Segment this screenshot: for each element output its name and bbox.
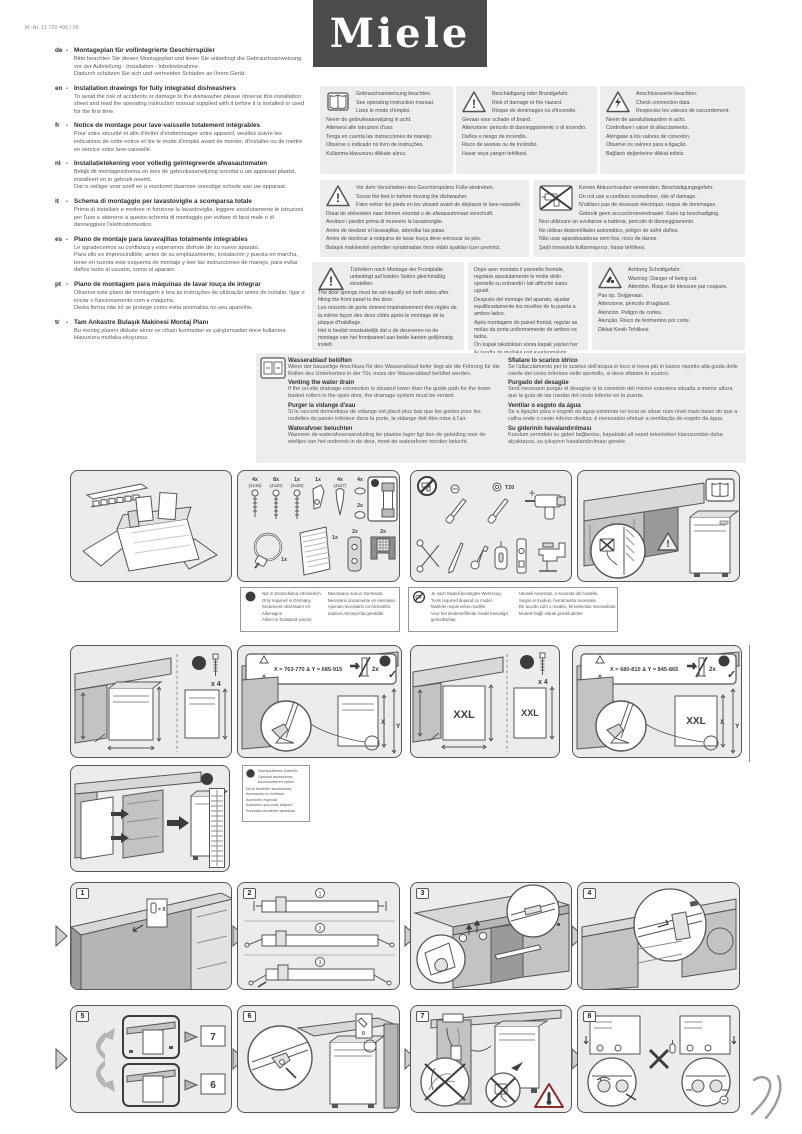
step-number: 2	[243, 888, 256, 899]
bracket-screw-detail	[248, 1026, 312, 1090]
pencil-icon	[449, 543, 463, 573]
note-line: Voor het desbetreffende model benodigd g…	[431, 611, 513, 624]
foot-detail-circle	[261, 701, 311, 751]
fitting-qty: 1x	[315, 477, 321, 483]
note-col: Utensili necessari, a seconda del modell…	[519, 591, 613, 628]
template-card: = X	[147, 899, 167, 927]
drain-section: Wasserablauf belüften Wenn der bauseitig…	[256, 353, 746, 463]
note-line: Alleen in Duitsland vereist.	[262, 617, 322, 624]
manual-reference-icon	[706, 479, 734, 501]
warning-line: Pas op. Snijgevaar.	[598, 293, 739, 300]
note-line: Sonradan alınabilen aksesuar.	[246, 809, 306, 815]
warning-line: Dikkat Kesik Tehlikesi.	[598, 327, 739, 334]
fitting-size: (4x20)	[290, 483, 303, 488]
intro-body: Observe este plano de montagem e leia as…	[74, 290, 305, 313]
step8-illustration	[578, 1006, 740, 1113]
warning-line: Atención. Peligro de cortes.	[598, 310, 739, 317]
svg-text:Y: Y	[735, 723, 740, 730]
cap-icon	[355, 512, 365, 519]
warning-line: Kullanma klavuzunu dikkate alınız.	[326, 151, 447, 158]
warning-line: Tenga en cuenta las instrucciones de man…	[326, 134, 447, 141]
warning-line: Gevaar voor schade of brand.	[462, 117, 591, 124]
warning-line: See operating instruction manual.	[356, 100, 447, 107]
intro-title: Schema di montaggio per lavastoviglie a …	[74, 198, 252, 206]
vent-kit-box: D	[368, 477, 397, 521]
svg-text:M: M	[524, 658, 531, 667]
left-adjustment-view	[584, 1016, 640, 1106]
intro-column: de-Montageplan für vollintegrierte Gesch…	[55, 47, 305, 349]
flow-arrow-icon	[55, 925, 68, 947]
svg-text:!: !	[666, 539, 669, 550]
panel-foot-adjust-std: X = 763-770 & Y = 685-915 2x M ✓	[237, 645, 402, 758]
panel-fittings: 4x (4x15) 8x (4x20) 1x (4x20) 1x 4x (4x2…	[237, 470, 400, 582]
warning-line: Antes de deslocar a máquina de lavar lou…	[326, 236, 523, 243]
warning-box-cut-hazard: Achtung Schnittgefahr. Warning: Danger o…	[592, 262, 745, 350]
warning-line: Vor dem Verschieben des Geschirrspülers …	[356, 185, 523, 192]
warning-line: Hasar veya yangın tehlikesi.	[462, 151, 591, 158]
step-number: 6	[243, 1011, 256, 1022]
fitting-qty: 2x	[380, 529, 386, 535]
warning-box-manual: Gebrauchsanweisung beachten. See operati…	[320, 86, 453, 174]
measurement-table-strip	[209, 788, 225, 868]
spirit-level-icon	[517, 539, 526, 573]
screw-count-label: x 4	[211, 681, 221, 688]
drain-body: Kurulum yerindeki su gideri bağlantısı, …	[508, 432, 742, 446]
step-number: 8	[583, 1011, 596, 1022]
intro-body: Bekijk dit montageschema en lees de gebr…	[74, 169, 305, 192]
cap-icon	[355, 488, 365, 494]
warning-triangle-icon: !	[326, 185, 350, 207]
warning-line: Avvitare i piedini prima di muovere la l…	[326, 219, 523, 226]
warning-line: Daños o riesgo de incendio.	[462, 134, 591, 141]
note-tools-by-model: Je nach Modell benötigtes Werkzeug. Tool…	[408, 587, 618, 632]
step5-illustration: 7 6	[71, 1006, 232, 1113]
torx-screwdriver-icon: T20	[487, 483, 514, 524]
feet-count-label: 2x	[372, 667, 379, 673]
warning-box-connection: Anschlusswerte beachten. Check connectio…	[600, 86, 745, 174]
panel-niche-dimensions-xxl: XXL XXL M x 4	[410, 645, 560, 758]
note-optional-accessories: M Nachkaufbares Zubehör. Optional access…	[242, 765, 310, 822]
intro-title: Installatietekening voor volledig geïnte…	[74, 160, 267, 168]
warning-line: Neem de aansluitwaarden in acht.	[606, 117, 739, 124]
warning-line: Screw the feet in before moving the dish…	[356, 194, 523, 201]
warning-line: Aténgase a los valores de conexión.	[606, 134, 739, 141]
panel-step-7: 7	[410, 1005, 572, 1113]
warning-line: Risque de dommages ou d'incendie.	[492, 108, 591, 115]
no-cordless-screwdriver-icon	[539, 185, 573, 211]
warning-line: Attenersi alle istruzioni d'uso.	[326, 125, 447, 132]
warning-line: Attenzione, pericolo di tagliarsi.	[598, 301, 739, 308]
step-number: 3	[416, 888, 429, 899]
step1-illustration: = X	[71, 883, 232, 990]
hose-clamp-icon	[255, 534, 281, 568]
note-line: Only required in Germany.	[262, 598, 322, 605]
panel-step-8: 8	[577, 1005, 740, 1113]
svg-text:M: M	[204, 777, 210, 784]
intro-item-it: it-Schema di montaggio per lavastoviglie…	[55, 198, 305, 230]
svg-text:X: X	[720, 719, 725, 726]
warning-line: N'utilisez pas de visseuse électrique, r…	[579, 202, 739, 209]
warning-line: Lisez le mode d'emploi.	[356, 108, 447, 115]
warning-line: Respectez les valeurs de raccordement.	[636, 108, 739, 115]
drain-column-right: Sfiatare lo scarico idrico Se l'allaccia…	[508, 355, 742, 447]
arrow-icon	[185, 1032, 197, 1042]
intro-item-es: es-Plano de montaje para lavavajillas to…	[55, 236, 305, 275]
warning-line: Atenção. Risco de ferimentos por corte.	[598, 318, 739, 325]
foot-detail-circle	[596, 701, 646, 751]
warning-line: Gebrauchsanweisung beachten.	[356, 91, 447, 98]
note-col: Je nach Modell benötigtes Werkzeug. Tool…	[431, 591, 513, 628]
warning-line: Después del montaje del aparato, ajustar…	[474, 297, 582, 318]
intro-title: Plano de montaje para lavavajillas total…	[74, 236, 248, 244]
svg-text:M: M	[196, 659, 203, 668]
warning-line: Bulaşık makinesini yerinden oynatmadan ö…	[326, 245, 523, 252]
screw-count-label: x 4	[538, 679, 548, 686]
panel-tools: T20	[410, 470, 572, 582]
open-book-icon	[326, 91, 350, 113]
no-cordless-badge-icon	[418, 477, 436, 495]
note-line: Utensili necessari, a seconda del modell…	[519, 591, 613, 598]
note-line: Sadece Almanya'da gereklidir.	[328, 611, 396, 618]
warning-line: Türfedern nach Montage der Frontplatte u…	[350, 267, 458, 288]
svg-text:!: !	[336, 191, 340, 205]
do-not-mark	[650, 1040, 675, 1068]
template-card: 0	[356, 1014, 372, 1038]
intro-body: Prima di installare e mettere in funzion…	[74, 207, 305, 230]
note-line: Accessoires en option.	[258, 780, 298, 786]
tools-illustration: T20	[411, 471, 572, 582]
panel-step-2: 2 1 2 3	[237, 882, 400, 990]
panel-foot-adjust-xxl: X = 680-810 & Y = 845-865 2x M ✓ XXL	[572, 645, 742, 758]
warning-line: Draai de stelvoeten naar binnen voordat …	[326, 211, 523, 218]
cut-hazard-icon	[598, 267, 622, 289]
rail-detail-circle	[507, 885, 559, 937]
warning-line: Anschlusswerte beachten.	[636, 91, 739, 98]
note-line: Nur in Deutschland erforderlich.	[262, 591, 322, 598]
substep-2: 2	[245, 924, 394, 948]
front-mounting-illustration: M	[71, 766, 230, 872]
screw-icon	[213, 654, 218, 676]
warning-triangle-icon: !	[318, 267, 344, 291]
intro-body: Bu montaj planını dikkate alınız ve ciha…	[74, 328, 305, 343]
fitting-qty: 1x	[332, 535, 338, 541]
option-top-thumb	[123, 1016, 179, 1058]
xxl-dimension-text: X = 680-810 & Y = 845-865	[610, 667, 678, 673]
warning-line: Faire entrer les pieds en les vissant av…	[356, 202, 523, 209]
intro-body: Pour votre sécurité et afin d'éviter d'e…	[74, 131, 305, 154]
branch-arrows	[96, 1028, 115, 1092]
unpacking-illustration	[71, 471, 232, 582]
fitting-size: (4x20)	[269, 483, 282, 488]
check-mark: ✓	[388, 669, 397, 681]
goto-step-7: 7	[210, 1032, 216, 1043]
warning-line: Risk of damage or fire hazard.	[492, 100, 591, 107]
svg-text:!: !	[329, 274, 333, 289]
drain-body: If the on-site drainage connection is si…	[288, 386, 500, 400]
drain-body: Será necesario purgar el desagüe si la c…	[508, 386, 742, 400]
drain-body: Wenn der bauseitige Anschluss für den Wa…	[288, 364, 500, 378]
panel-step-5: 5 7 6	[70, 1005, 232, 1113]
fitting-size: (4x27)	[333, 483, 346, 488]
fitting-qty: 2x	[352, 529, 358, 535]
socket-warning-detail	[591, 524, 645, 578]
warning-line: Achtung Schnittgefahr.	[628, 267, 739, 274]
note-col: Nur in Deutschland erforderlich. Only re…	[262, 591, 322, 628]
intro-item-fr: fr-Notice de montage pour lave-vaisselle…	[55, 122, 305, 154]
note-line: Necessario solo in Germania.	[328, 591, 396, 598]
niche-dimensions-illustration: M x 4	[71, 646, 232, 758]
screws-icon	[252, 490, 300, 519]
warning-line: Neem de gebruiksaanwijzing in acht.	[326, 117, 447, 124]
svg-text:!: !	[472, 97, 476, 111]
intro-item-pt: pt-Plano de montagem para máquinas de la…	[55, 281, 305, 313]
warning-line: Şarjlı tornavida kullanmayınız, hasar te…	[539, 245, 739, 252]
warning-line: Warning: Danger of being cut.	[628, 276, 739, 283]
intro-title: Notice de montage pour lave-vaisselle to…	[74, 122, 260, 130]
intro-item-en: en-Installation drawings for fully integ…	[55, 85, 305, 117]
note-col: Necessario solo in Germania. Necesario ú…	[328, 591, 396, 628]
fitting-qty: 2x	[357, 503, 363, 509]
niche-dimensions-xxl-illustration: XXL XXL M x 4	[411, 646, 560, 758]
intro-body: Le agradecemos su confianza y esperamos …	[74, 245, 305, 275]
warning-line: Gebruik geen accuschroevendraaier. Kans …	[579, 211, 739, 218]
fold-mark	[749, 645, 750, 762]
y-label: Y	[396, 723, 401, 730]
svg-text:2x: 2x	[709, 667, 716, 673]
warning-line: Les ressorts de porte doivent impérative…	[318, 305, 458, 326]
drill-icon	[525, 490, 565, 519]
flow-arrow-icon	[55, 1048, 68, 1070]
note-line: Según el modelo, herramienta necesaria.	[519, 598, 613, 605]
intro-lang: de	[55, 47, 66, 55]
panel-step-6: 6 0	[237, 1005, 400, 1113]
dishwasher	[185, 690, 219, 738]
intro-item-nl: nl-Installatietekening voor volledig geï…	[55, 160, 305, 192]
warning-line: Non utilizzare un avvitatore a batteria,…	[539, 219, 739, 226]
template-label: = X	[158, 907, 166, 913]
warning-box-door-springs-b: Dopo aver montato il pannello frontale, …	[468, 262, 588, 350]
step-number: 1	[76, 888, 89, 899]
note-line: Seulement nécessaire en Allemagne.	[262, 604, 322, 617]
std-dimension-text: X = 763-770 & Y = 685-915	[274, 667, 342, 673]
foil-hand-detail	[417, 935, 465, 983]
drain-body: Se a ligação para o esgoto da água exist…	[508, 409, 742, 423]
fittings-illustration: 4x (4x15) 8x (4x20) 1x (4x20) 1x 4x (4x2…	[238, 471, 400, 582]
d-badge-icon: D	[245, 591, 256, 602]
substep-3: 3	[249, 958, 391, 988]
warning-box-door-springs-a: ! Türfedern nach Montage der Frontplatte…	[312, 262, 464, 350]
step-number: 4	[583, 888, 596, 899]
warning-line: The door springs must be set equally on …	[318, 290, 458, 304]
intro-title: Installation drawings for fully integrat…	[74, 85, 236, 93]
miele-logo: Miele	[313, 0, 487, 67]
warning-line: Não usar aparafusadoras sem fios, risco …	[539, 236, 739, 243]
furniture-front	[81, 797, 113, 859]
no-socket-detail	[486, 1073, 520, 1107]
warning-line: Antes de deslizar el lavavajillas, atorn…	[326, 228, 523, 235]
warning-line: Após montagem do painel frontal, regular…	[474, 320, 582, 341]
jigsaw-icon	[539, 543, 565, 571]
no-kink-hose-detail	[421, 1058, 469, 1106]
warning-box-no-cordless: Keinen Akkuschrauber verwenden, Beschädi…	[533, 180, 745, 257]
panel-step-4: 4	[577, 882, 740, 990]
drain-body: Si le raccord domestique de vidange est …	[288, 409, 500, 423]
miele-badge-icon: M	[246, 769, 255, 778]
svg-text:1: 1	[319, 891, 322, 897]
drain-column-left: Wasserablauf belüften Wenn der bauseitig…	[288, 355, 500, 447]
warning-line: Bağlantı değerlerine dikkat ediniz.	[606, 151, 739, 158]
intro-body: To avoid the risk of accidents or damage…	[74, 94, 305, 117]
fitting-size: (4x15)	[248, 483, 261, 488]
intro-item-de: de-Montageplan für vollintegrierte Gesch…	[55, 47, 305, 79]
xxl-label: XXL	[453, 709, 475, 721]
warning-line: Dopo aver montato il pannello frontale, …	[474, 267, 582, 296]
note-line: Modele bağlı olarak gerekli aletler.	[519, 611, 613, 618]
screw-icon	[540, 653, 545, 675]
installation-sheet: M.-Nr. 11 720 490 / 00 Miele de-Montagep…	[0, 0, 802, 1134]
panel-unpacking	[70, 470, 232, 582]
grille-icon	[371, 537, 395, 559]
warning-box-fire: ! Beschädigung oder Brandgefahr. Risk of…	[456, 86, 597, 174]
intro-body: Bitte beachten Sie diesen Montageplan un…	[74, 56, 305, 79]
warning-line: Risco de avarias ou de incêndio.	[462, 142, 591, 149]
svg-text:M: M	[721, 658, 726, 665]
zero-label: 0	[362, 1031, 365, 1037]
plug-screw-icon	[336, 489, 344, 515]
step-number: 5	[76, 1011, 89, 1022]
d-badge: D	[373, 481, 377, 487]
drain-body: Se l'allacciamento per lo scarico dell'a…	[508, 364, 742, 378]
protective-sheet-icon	[300, 527, 331, 575]
electric-hazard-icon	[606, 91, 630, 113]
warning-box-feet: ! Vor dem Verschieben des Geschirrspüler…	[320, 180, 529, 257]
right-adjustment-view	[680, 1016, 736, 1106]
warning-line: No utilizar destornillador automático, p…	[539, 228, 739, 235]
note-line: Apenas necessário na Alemanha.	[328, 604, 396, 611]
panel-niche-overview: !	[577, 470, 740, 582]
step7-illustration	[411, 1006, 572, 1113]
intro-title: Plano de montagem para máquinas de lavar…	[74, 281, 261, 289]
panel-step-3: 3	[410, 882, 572, 990]
dishwasher	[690, 511, 738, 577]
warning-line: Attenzione: pericolo di danneggiamento o…	[462, 125, 591, 132]
intro-item-tr: tr-Tam Ankastre Bulaşık Makinesi Montaj …	[55, 319, 305, 343]
note-line: Tools required depend on model.	[431, 598, 513, 605]
torx-label: T20	[505, 485, 514, 491]
goto-step-6: 6	[210, 1080, 216, 1091]
warning-line: Observe os valores para a ligação.	[606, 142, 739, 149]
check-mark: ✓	[727, 669, 736, 681]
warning-line: Keinen Akkuschrauber verwenden, Beschädi…	[579, 185, 739, 192]
foot-adjust-illustration: X = 763-770 & Y = 685-915 2x M ✓	[238, 646, 402, 758]
warning-line: Attention. Risque de blessure par coupur…	[628, 284, 739, 291]
step4-illustration	[578, 883, 740, 990]
intro-title: Tam Ankastre Bulaşık Makinesi Montaj Pla…	[74, 319, 208, 327]
drain-vent-icon	[260, 357, 286, 379]
warning-line: Beschädigung oder Brandgefahr.	[492, 91, 591, 98]
warning-triangle-icon: !	[462, 91, 486, 113]
note-line: Necesario únicamente en Alemania.	[328, 598, 396, 605]
foot-adjust-xxl-illustration: X = 680-810 & Y = 845-865 2x M ✓ XXL	[573, 646, 742, 758]
svg-text:D: D	[248, 594, 253, 601]
option-bottom-thumb	[123, 1064, 179, 1106]
svg-text:M: M	[248, 772, 253, 778]
panel-front-mounting: M	[70, 765, 230, 872]
intro-title: Montageplan für vollintegrierte Geschirr…	[74, 47, 215, 55]
step-number: 7	[416, 1011, 429, 1022]
svg-text:3: 3	[319, 960, 322, 966]
niche-illustration: !	[578, 471, 740, 582]
bracket-icon	[313, 485, 324, 509]
scissors-icon	[417, 540, 439, 572]
step3-illustration	[411, 883, 572, 990]
fitting-qty: 1x	[281, 557, 287, 563]
svg-text:XXL: XXL	[686, 716, 705, 727]
panel-step-1: 1 = X	[70, 882, 232, 990]
svg-text:M: M	[382, 658, 387, 665]
dishwasher	[330, 1036, 384, 1108]
note-germany-only: D Nur in Deutschland erforderlich. Only …	[240, 587, 400, 632]
signature-mark	[748, 1072, 790, 1120]
svg-text:XXL: XXL	[521, 708, 539, 718]
x-label: X	[381, 719, 386, 726]
tools-badge-icon	[413, 591, 425, 603]
panel-niche-dimensions: M x 4	[70, 645, 232, 758]
bracket-detail-circle	[634, 889, 706, 961]
flat-screwdriver-icon	[445, 485, 466, 524]
note-line: Nachkaufbares Zubehör.	[258, 769, 298, 775]
warning-line: Check connection data.	[636, 100, 739, 107]
note-line: Matériel requis selon modèle.	[431, 604, 513, 611]
miele-logo-text: Miele	[330, 10, 471, 57]
step6-illustration: 0	[238, 1006, 400, 1113]
arrow-icon	[185, 1080, 197, 1090]
warning-line: Het is beslist noodzakelijk dat u de deu…	[318, 328, 458, 349]
key-icon	[471, 546, 488, 569]
substep-1: 1	[254, 889, 386, 913]
warning-line: Observe o indicado no livro de instruçõe…	[326, 142, 447, 149]
step2-illustration: 1 2 3	[238, 883, 400, 990]
warning-line: Do not use a cordless screwdriver, risk …	[579, 194, 739, 201]
part-number: M.-Nr. 11 720 490 / 00	[25, 25, 79, 31]
fitting-qty: 4x	[357, 477, 363, 483]
suction-lifter-icon	[495, 541, 507, 569]
note-line: Je nach Modell benötigtes Werkzeug.	[431, 591, 513, 598]
drain-body: Wanneer de waterafvoeraansluiting ter pl…	[288, 432, 500, 446]
warning-line: Controllare i valori di allacciamento.	[606, 125, 739, 132]
svg-text:2: 2	[319, 926, 322, 932]
note-line: De acordo com o modelo, ferramentas nece…	[519, 604, 613, 611]
holder-icon	[348, 537, 361, 571]
